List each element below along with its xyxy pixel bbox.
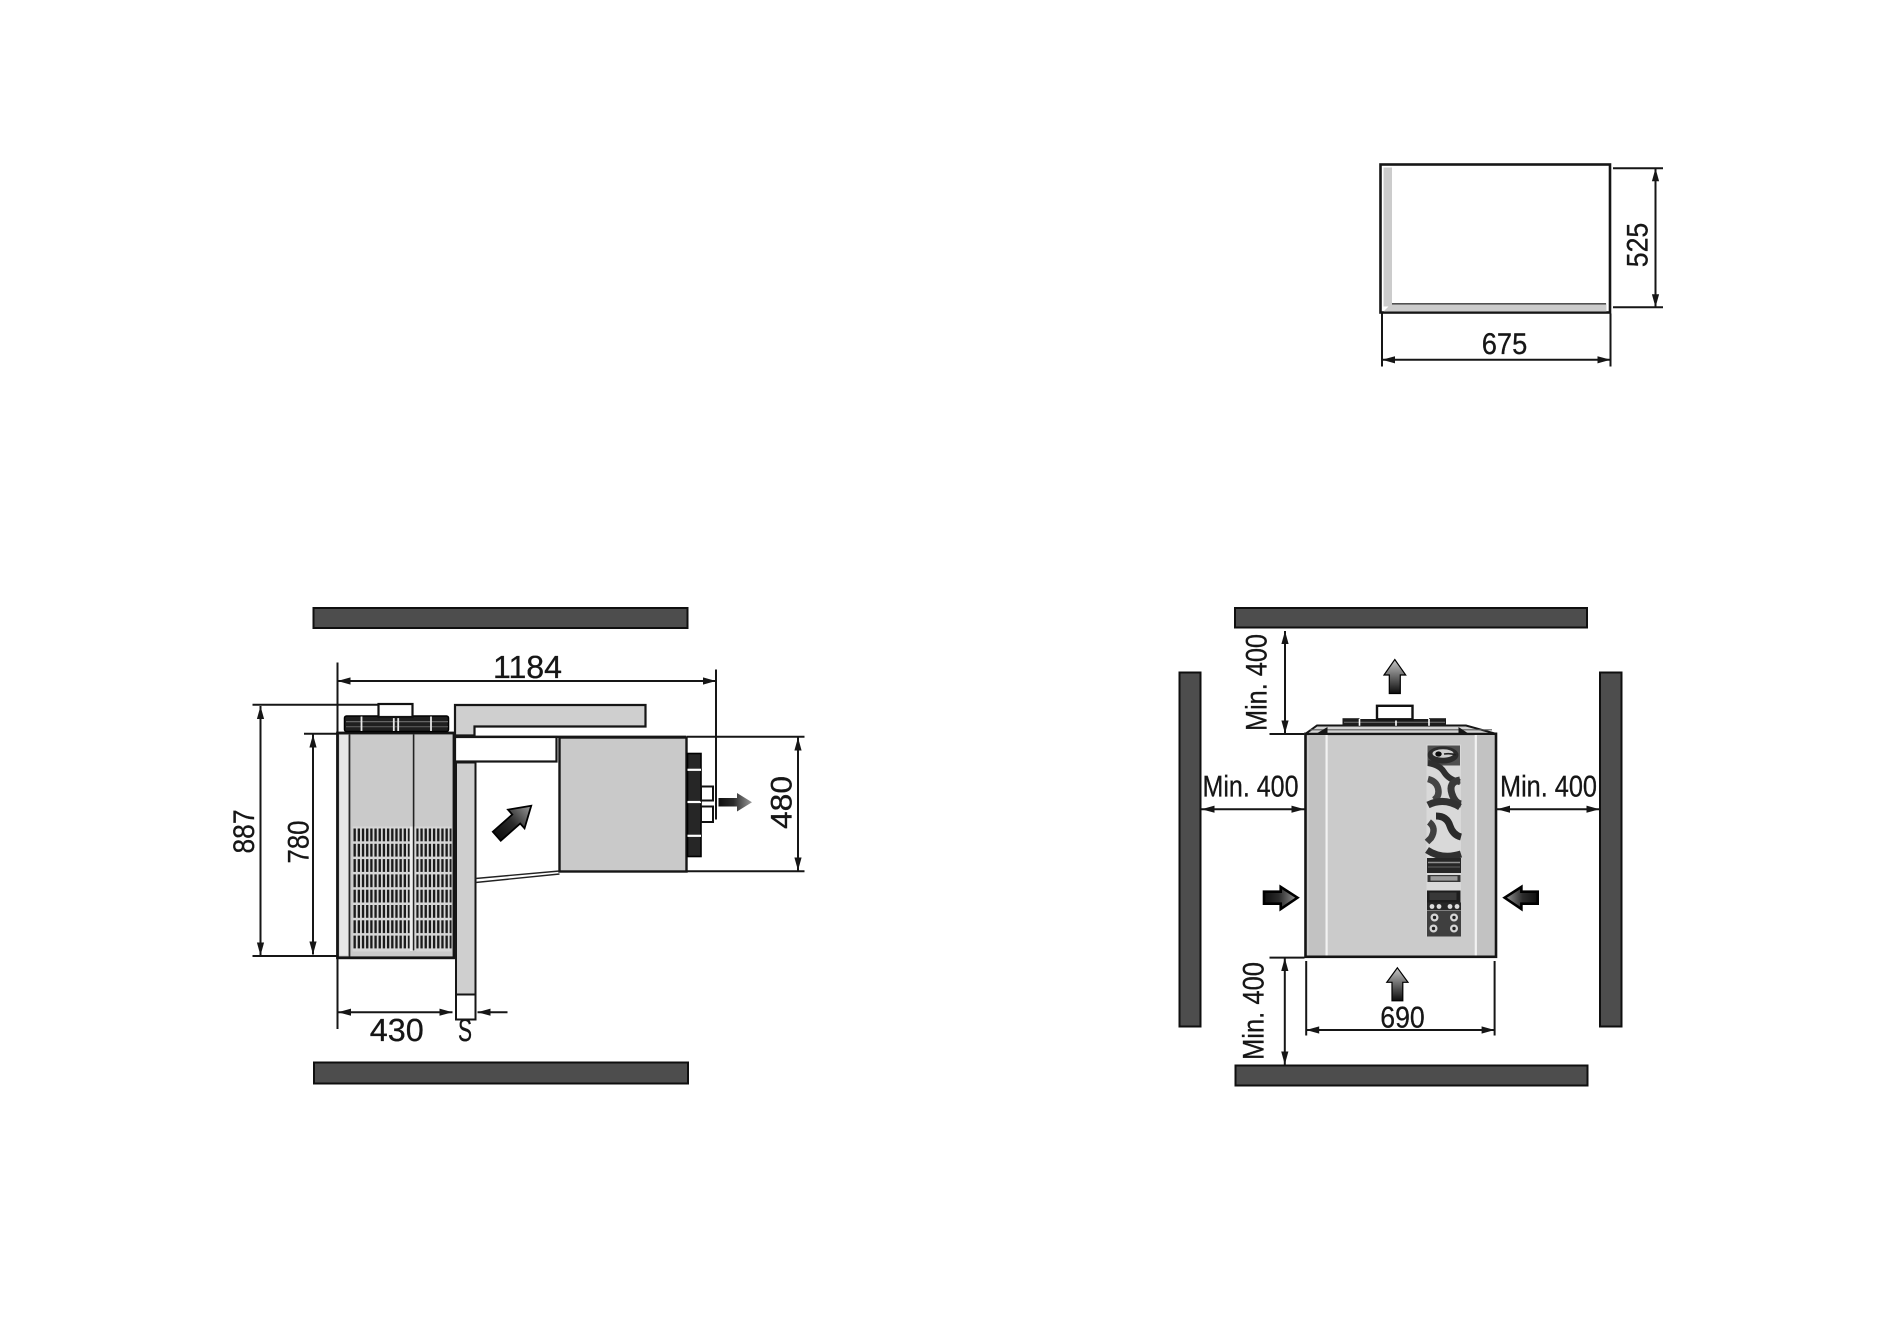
svg-text:887: 887 (228, 810, 261, 854)
svg-text:780: 780 (283, 821, 316, 864)
svg-text:S: S (458, 1012, 472, 1048)
svg-text:1184: 1184 (493, 649, 562, 685)
svg-text:Min. 400: Min. 400 (1241, 634, 1274, 731)
svg-text:480: 480 (766, 776, 799, 829)
svg-text:Min. 400: Min. 400 (1500, 770, 1597, 803)
svg-text:430: 430 (370, 1012, 424, 1048)
svg-text:525: 525 (1622, 223, 1655, 268)
svg-text:Min. 400: Min. 400 (1238, 962, 1271, 1060)
svg-text:690: 690 (1380, 1001, 1425, 1034)
svg-text:675: 675 (1482, 328, 1528, 361)
svg-text:Min. 400: Min. 400 (1202, 770, 1298, 803)
